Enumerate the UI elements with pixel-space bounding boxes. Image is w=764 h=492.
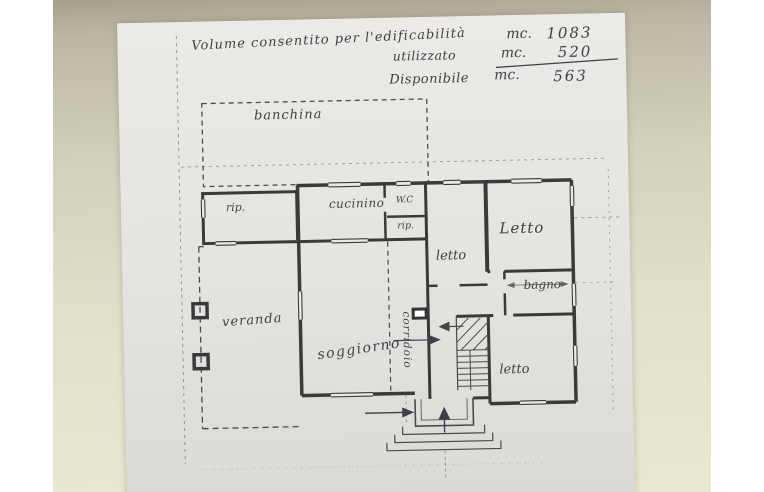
stair-direction-arrowhead (438, 321, 449, 331)
floor-plan-svg: Volume consentito per l'edificabilità mc… (117, 13, 635, 492)
veranda-outline (192, 245, 303, 429)
door-span-arrowhead (507, 282, 515, 288)
room-label-letto-right: Letto (498, 218, 544, 237)
corridor-dashed-divider (388, 242, 391, 392)
door-jamb (413, 309, 426, 318)
room-label-rip-annex: rip. (226, 201, 246, 214)
annotation-line3-unit: mc. (494, 67, 520, 84)
entry-up-arrowhead (438, 406, 450, 419)
room-label-letto-bottom: letto (499, 362, 530, 378)
annotation-line2-value: 520 (558, 42, 593, 61)
annotation-line2-label: utilizzato (393, 47, 457, 63)
annotation-line1-value: 1083 (546, 23, 593, 42)
windows (199, 176, 579, 413)
corridor-arrowhead (429, 335, 441, 345)
scanned-floorplan-page: Volume consentito per l'edificabilità mc… (0, 0, 764, 492)
photo-background: Volume consentito per l'edificabilità mc… (53, 0, 711, 492)
room-label-wc: W.C (396, 195, 414, 205)
entry-arrowhead (402, 407, 414, 417)
document-paper: Volume consentito per l'edificabilità mc… (117, 13, 635, 492)
room-label-veranda: veranda (222, 311, 283, 330)
door-span-arrowhead (561, 281, 569, 287)
room-label-cucinino: cucinino (329, 196, 385, 211)
room-label-corridoio: corridoio (400, 311, 413, 369)
room-label-banchina: banchina (254, 107, 323, 123)
room-label-soggiorno: soggiorno (316, 335, 402, 363)
annotation-line3-value: 563 (553, 67, 588, 86)
annotation-line2-unit: mc. (501, 45, 527, 62)
entry-steps (386, 397, 501, 450)
annotation-line1-unit: mc. (506, 26, 532, 43)
room-label-letto-middle: letto (436, 248, 467, 264)
stairs (438, 318, 489, 391)
handwritten-annotation: Volume consentito per l'edificabilità mc… (191, 23, 618, 93)
annotation-line3-label: Disponibile (388, 71, 469, 88)
room-label-bagno: bagno (523, 277, 561, 292)
room-label-rip-small: rip. (397, 220, 414, 231)
